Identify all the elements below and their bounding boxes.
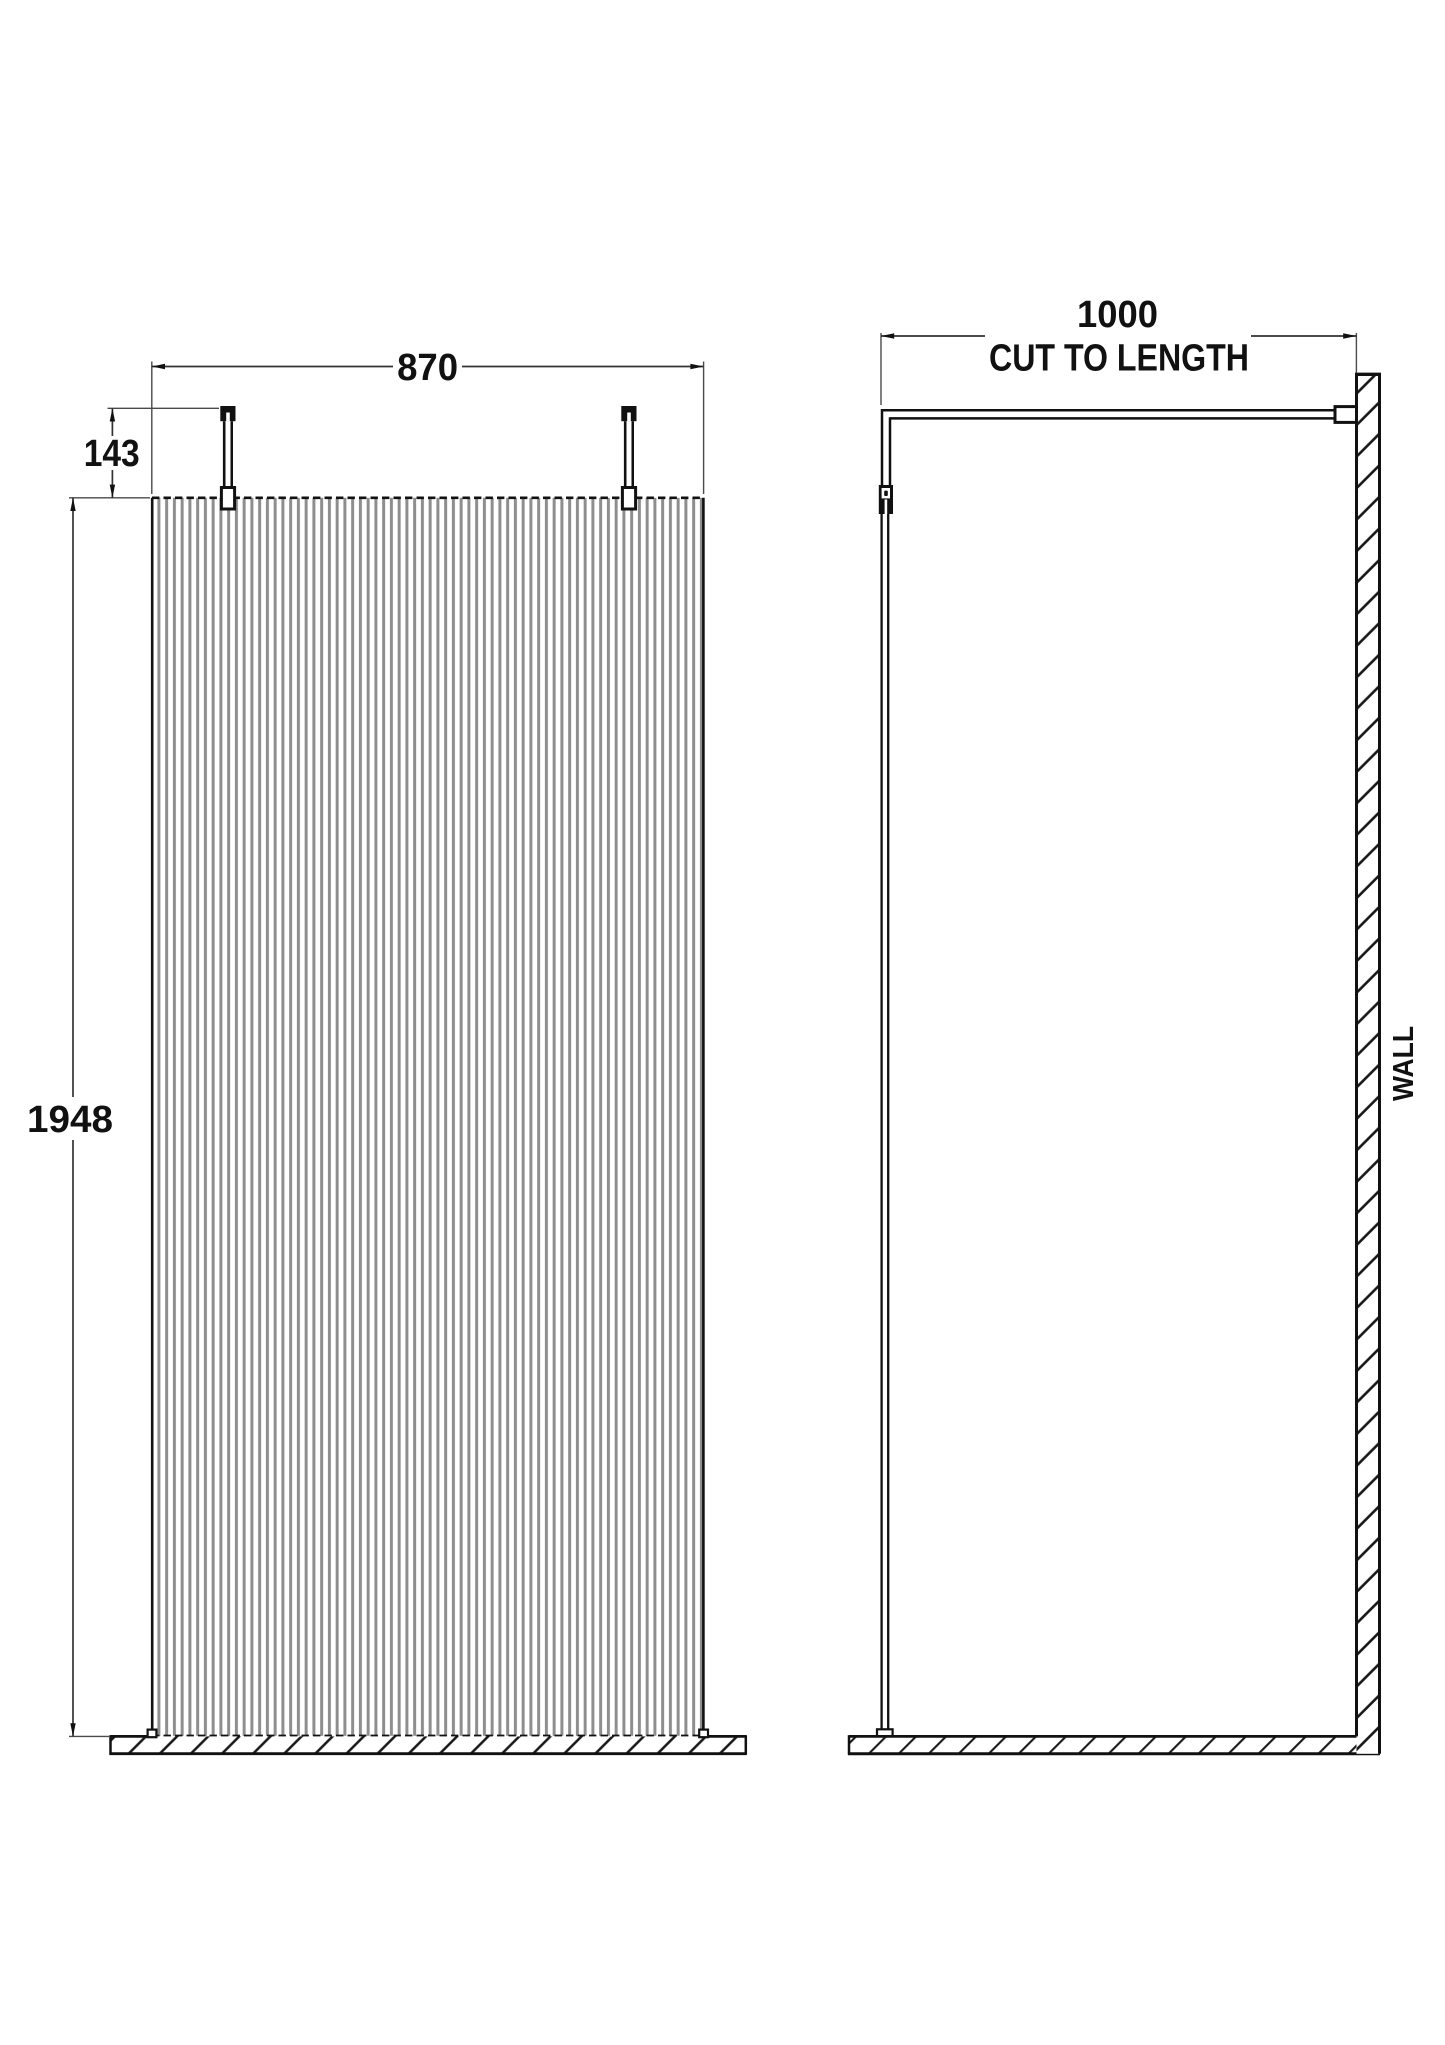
svg-text:CUT TO LENGTH: CUT TO LENGTH (989, 338, 1249, 380)
svg-text:143: 143 (84, 433, 140, 475)
svg-text:870: 870 (397, 347, 458, 389)
svg-text:WALL: WALL (1388, 1026, 1420, 1101)
svg-text:1000: 1000 (1077, 294, 1158, 336)
svg-text:1948: 1948 (27, 1099, 113, 1141)
